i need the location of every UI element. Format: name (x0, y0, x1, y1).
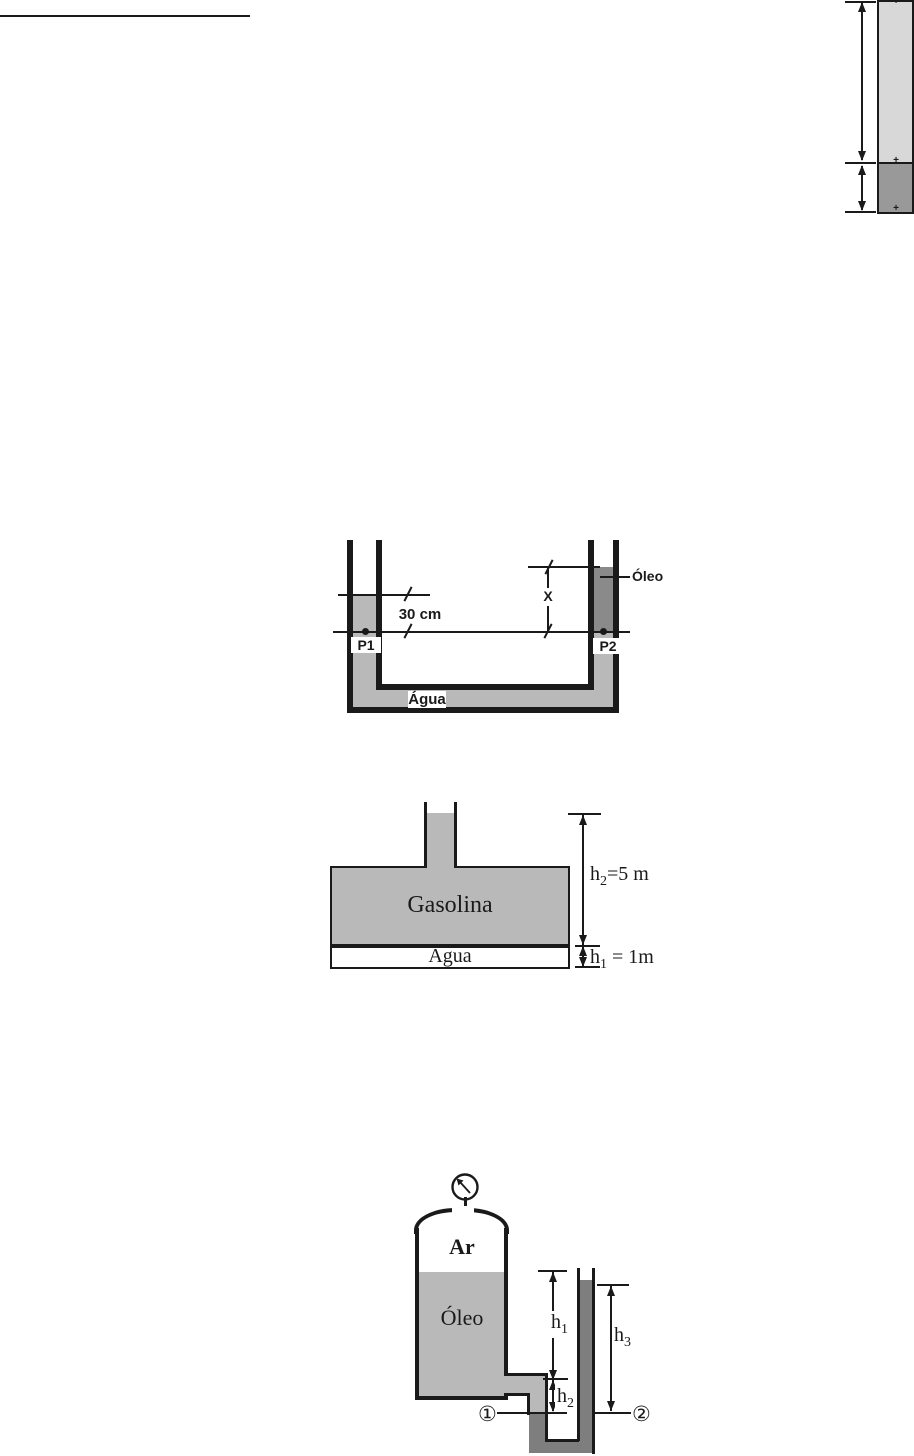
water-level-line (338, 594, 430, 596)
column-marker-bottom: + (891, 203, 901, 214)
document-page: + + + 30 cm X (0, 0, 914, 1456)
h2-dim-label: h2=5 m (590, 863, 649, 890)
water-label: Água (330, 945, 570, 968)
manometer-inner-bottom-wall (545, 1439, 579, 1442)
oil-label: Óleo (632, 568, 663, 584)
h1-dim-label: h1 = 1m (590, 946, 654, 973)
column-marker-top: + (891, 0, 901, 7)
p1-point-dot (362, 628, 369, 635)
inner-right-wall (588, 540, 594, 689)
oil-label: Óleo (436, 1305, 488, 1331)
dim-30cm-label: 30 cm (390, 606, 450, 623)
inner-left-wall (376, 540, 382, 689)
h2-sub: 2 (567, 1396, 574, 1411)
point1-label: ① (478, 1402, 497, 1427)
h1-sub: 1 (600, 957, 607, 972)
arrowhead-icon (858, 151, 866, 161)
oil-top-line (528, 566, 600, 568)
manometer-fluid-right (580, 1280, 592, 1453)
h1-sub: 1 (561, 1322, 568, 1337)
p1-label: P1 (351, 637, 381, 653)
point1-level-line (497, 1412, 567, 1414)
dim-tick (845, 211, 876, 213)
h2-dim-line (582, 815, 584, 945)
arrowhead-icon (858, 201, 866, 211)
pipe-top-line (504, 1373, 547, 1376)
point2-level-line (595, 1412, 631, 1414)
h3-base: h (614, 1324, 624, 1346)
water-label: Água (408, 691, 446, 708)
arrowhead-icon (858, 2, 866, 12)
dim-line-upper (861, 3, 863, 160)
water-fill-channel (353, 690, 613, 707)
point2-label: ② (632, 1402, 651, 1427)
gauge-stem (464, 1197, 467, 1206)
p2-point-dot (600, 628, 607, 635)
h1-dim-label: h1 (549, 1311, 570, 1338)
arrowhead-icon (549, 1272, 557, 1282)
gauge-needle-icon (460, 1182, 470, 1193)
h3-dim-label: h3 (612, 1324, 633, 1351)
p2-label: P2 (593, 638, 623, 654)
tank-right-wall (504, 1228, 508, 1373)
h1-base: h (590, 946, 600, 968)
top-rule (0, 15, 250, 17)
oil-fill (419, 1272, 504, 1396)
x-dim-label: X (539, 588, 557, 606)
h2-sub: 2 (600, 874, 607, 889)
oil-leader-line (600, 576, 630, 578)
arrowhead-icon (579, 946, 587, 956)
h2-dim-label: h2 (555, 1385, 576, 1412)
h3-sub: 3 (624, 1335, 631, 1350)
air-label: Ar (444, 1234, 480, 1260)
dome-gap-cover (452, 1204, 474, 1220)
outer-right-wall (613, 540, 619, 713)
column-marker-middle: + (891, 155, 901, 166)
neck-left-wall (424, 802, 427, 867)
gasoline-label: Gasolina (330, 892, 570, 919)
inner-bottom-wall (376, 684, 594, 690)
arrowhead-icon (579, 957, 587, 967)
arrowhead-icon (579, 815, 587, 825)
tank-bottom-wall (415, 1396, 508, 1400)
manometer-inner-right-wall (577, 1268, 580, 1441)
neck-fill (427, 813, 454, 869)
dim-tick (845, 162, 876, 164)
elbow-fill (530, 1393, 545, 1413)
arrowhead-icon (579, 935, 587, 945)
outer-bottom-wall (347, 707, 619, 713)
outer-left-wall (347, 540, 353, 713)
p1-p2-level-line (333, 631, 630, 633)
arrowhead-icon (607, 1286, 615, 1296)
tank-left-wall (415, 1228, 419, 1400)
neck-right-wall (454, 802, 457, 867)
h2-rest: =5 m (607, 863, 649, 885)
h1-rest: = 1m (607, 946, 654, 968)
column-top-fluid (879, 2, 912, 162)
arrowhead-icon (607, 1401, 615, 1411)
manometer-inner-left-wall (545, 1373, 548, 1441)
h1-base: h (551, 1311, 561, 1333)
h2-base: h (590, 863, 600, 885)
h2-base: h (557, 1385, 567, 1407)
manometer-outer-right-wall (592, 1268, 595, 1454)
pipe-fill (504, 1376, 545, 1393)
arrowhead-icon (858, 165, 866, 175)
column-body (877, 0, 914, 214)
